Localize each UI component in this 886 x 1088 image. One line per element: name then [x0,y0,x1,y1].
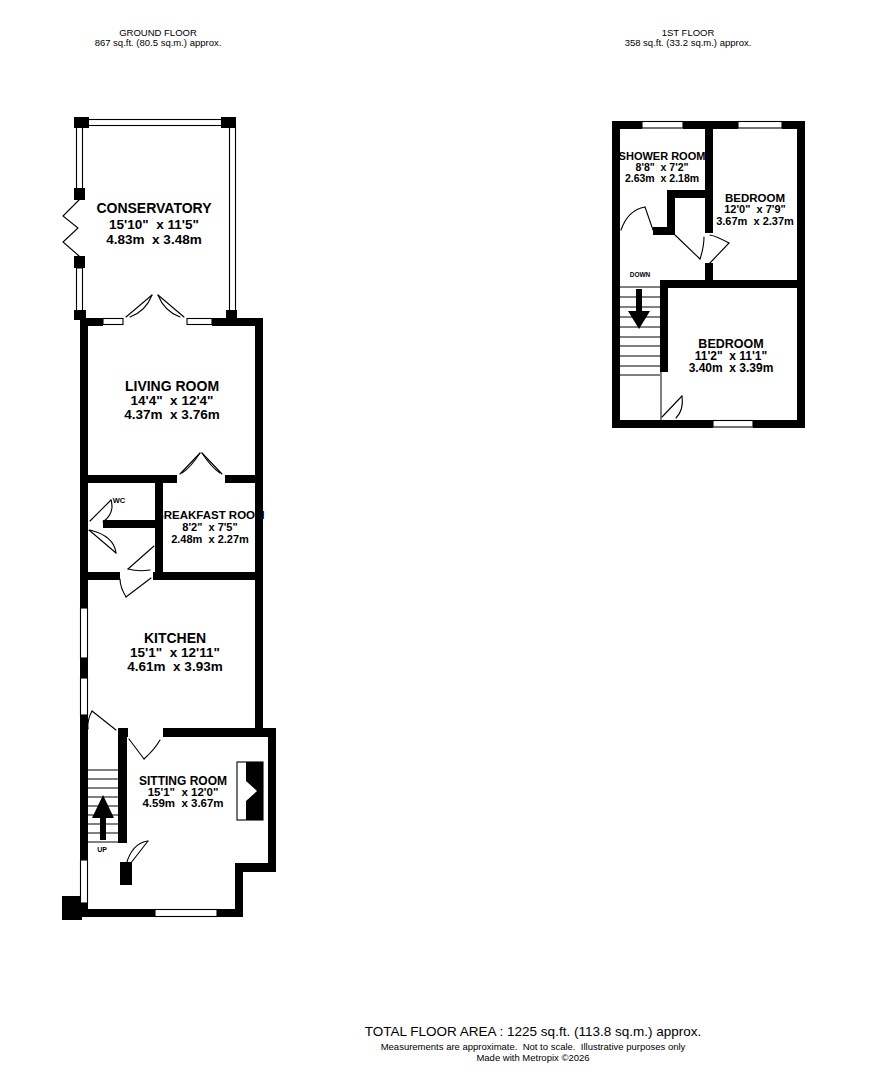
room-dim-metric: 2.48m x 2.27m [171,533,249,545]
footer: TOTAL FLOOR AREA : 1225 sq.ft. (113.8 sq… [365,1024,701,1063]
wall [221,117,236,128]
opening-zigzag [63,200,79,256]
wall [268,728,276,872]
ground-floor-plan: CONSERVATORY 15'10" x 11'5" 4.83m x 3.48… [62,117,276,920]
wall [660,288,668,372]
wall [118,728,128,737]
room-dim-metric: 4.59m x 3.67m [142,797,223,809]
door-arc [129,739,160,759]
room-dim-metric: 4.83m x 3.48m [106,232,201,247]
window [230,126,236,318]
window [713,421,753,428]
wall [74,188,85,200]
wall [235,863,243,917]
wall [217,909,243,917]
room-label-living-room: LIVING ROOM [125,378,219,394]
disclaimer: Measurements are approximate. Not to sca… [381,1041,686,1052]
wall [653,227,675,235]
wall [118,737,127,843]
wall [103,520,163,528]
wall [74,117,89,128]
window [77,120,229,126]
wall [225,475,263,483]
total-floor-area: TOTAL FLOOR AREA : 1225 sq.ft. (113.8 sq… [365,1024,701,1039]
room-label-kitchen: KITCHEN [144,630,206,646]
double-door [126,295,184,317]
wall [153,572,263,580]
room-label-wc: WC [113,496,126,505]
wall [80,715,88,860]
stairs-up-label: UP [97,846,107,853]
wall [667,190,713,198]
ground-floor-area: 867 sq.ft. (80.5 sq.m.) approx. [95,37,222,48]
down-arrow-icon [636,289,642,313]
wall [782,121,805,129]
wall [797,121,805,428]
wall [255,318,263,737]
wall [660,280,797,288]
room-dim-metric: 4.61m x 3.93m [127,659,222,674]
first-floor-area: 358 sq.ft. (33.2 sq.m.) approx. [625,37,752,48]
wall [612,121,642,129]
wall [80,572,120,580]
window [738,122,782,129]
wall [155,483,163,580]
wall [80,909,155,917]
wall [80,318,88,608]
window [155,910,217,917]
window [103,319,123,325]
room-dim-metric: 3.40m x 3.39m [689,361,774,375]
down-arrow-icon [628,311,650,329]
room-dim-imperial: 14'4" x 12'4" [130,393,213,408]
stairs-down-label: DOWN [630,271,651,278]
room-label-breakfast-room: BREAKFAST ROOM [155,509,264,521]
room-dim-metric: 4.37m x 3.76m [124,407,219,422]
fireplace [237,762,263,820]
room-label-conservatory: CONSERVATORY [96,200,212,216]
wall [163,728,276,737]
door-arc [90,500,112,522]
credit: Made with Metropix ©2026 [476,1052,589,1063]
room-dim-metric: 3.67m x 2.37m [716,215,794,227]
first-floor-plan: SHOWER ROOM 8'8" x 7'2" 2.63m x 2.18m BE… [612,121,805,428]
wall [753,420,805,428]
door-arc [89,530,154,571]
room-dim-imperial: 12'0" x 7'9" [724,203,786,215]
staircase-up [88,770,118,842]
window [81,608,88,658]
room-dim-imperial: 15'1" x 12'11" [130,645,220,660]
wall [612,420,713,428]
room-dim-imperial: 15'10" x 11'5" [109,217,199,232]
wall [212,318,263,326]
floor-plan-canvas: GROUND FLOOR 867 sq.ft. (80.5 sq.m.) app… [0,0,886,1088]
window [642,122,683,129]
wall [74,256,85,268]
staircase-down [620,287,660,375]
wall [683,121,738,129]
double-door [180,453,222,474]
wall [80,475,177,483]
wall [612,121,620,428]
room-dim-imperial: 8'2" x 7'5" [182,521,237,533]
floorplan-page: GROUND FLOOR 867 sq.ft. (80.5 sq.m.) app… [0,0,886,1088]
wall [80,658,88,678]
window [81,678,88,715]
window [81,860,88,903]
wall [80,318,103,326]
wall [62,896,82,920]
wall [705,129,713,233]
window [187,319,212,325]
window [77,126,83,190]
room-dim-metric: 2.63m x 2.18m [625,172,699,184]
